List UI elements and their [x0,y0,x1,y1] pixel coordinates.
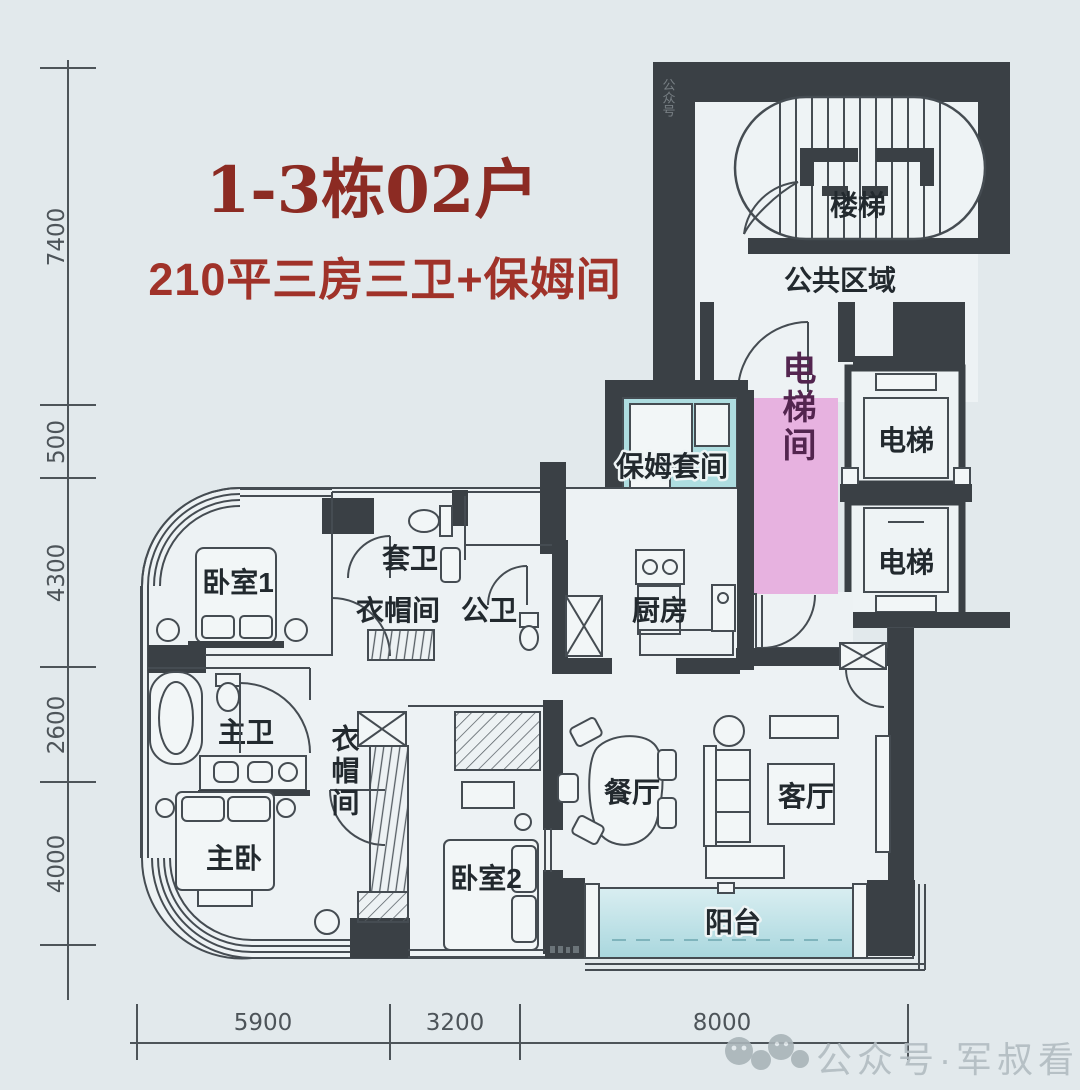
bedroom2-label: 卧室2 [450,862,522,894]
side-watermark: 公众号 [661,78,676,117]
elevator-b-label: 电梯 [878,547,934,578]
kitchen-sink-icon [712,585,735,631]
nanny-suite-label: 保姆套间 [616,451,728,482]
side-table-icon [714,716,744,746]
floorplan-drawing: 1-3栋02户 210平三房三卫+保姆间 7400 500 4300 2600 … [0,0,1080,1090]
dim-left-4300: 4300 [44,544,70,603]
master-bath-label: 主卫 [218,717,274,748]
elevator-a-label: 电梯 [878,425,934,456]
stove-icon [636,550,684,584]
watermark-text: 公众号·军叔看楼市 [816,1039,1080,1080]
dim-bottom-5900: 5900 [234,1010,293,1036]
balcony-label: 阳台 [705,906,761,938]
vanity-icon [198,756,310,796]
bedroom1-label: 卧室1 [202,566,274,598]
dim-left-4000: 4000 [44,835,70,894]
stairs-label: 楼梯 [830,190,886,221]
dim-left-500: 500 [44,420,70,464]
closet-hatch-icon [368,630,434,660]
stool-icon [315,910,339,934]
toilet-icon [216,674,240,711]
ensuite-bath-label: 套卫 [382,543,438,574]
sink-icon [441,548,460,582]
kitchen-label: 厨房 [632,594,688,626]
dining-label: 餐厅 [604,777,660,808]
dim-left-2600: 2600 [44,696,70,755]
balcony-door-notch [718,883,734,893]
room-elevator-hall: 电梯间 [753,351,853,668]
master-bedroom-label: 主卧 [206,843,262,874]
wardrobe-icon [370,746,408,892]
cloakroom-upper-label: 衣帽间 [356,594,440,626]
guest-bath-label: 公卫 [461,595,517,626]
dim-bottom-3200: 3200 [426,1010,485,1036]
closet2-icon [455,712,540,770]
plan-title: 1-3栋02户 [206,153,539,228]
dim-left-7400: 7400 [44,208,70,267]
living-label: 客厅 [778,780,834,812]
plan-subtitle: 210平三房三卫+保姆间 [148,254,621,305]
console-icon [770,716,838,738]
living-window [876,736,890,852]
elevator-hall-label: 电梯间 [777,351,816,465]
public-area-label: 公共区域 [784,265,896,296]
room-balcony: 阳台 [545,878,925,970]
dim-bottom-8000: 8000 [693,1010,752,1036]
cloakroom-center-label: 衣帽间 [329,723,360,820]
toilet-icon [520,613,538,650]
floorplan-page: 1-3栋02户 210平三房三卫+保姆间 7400 500 4300 2600 … [0,0,1080,1090]
bathtub-icon [150,672,202,764]
desk-icon [462,782,514,808]
